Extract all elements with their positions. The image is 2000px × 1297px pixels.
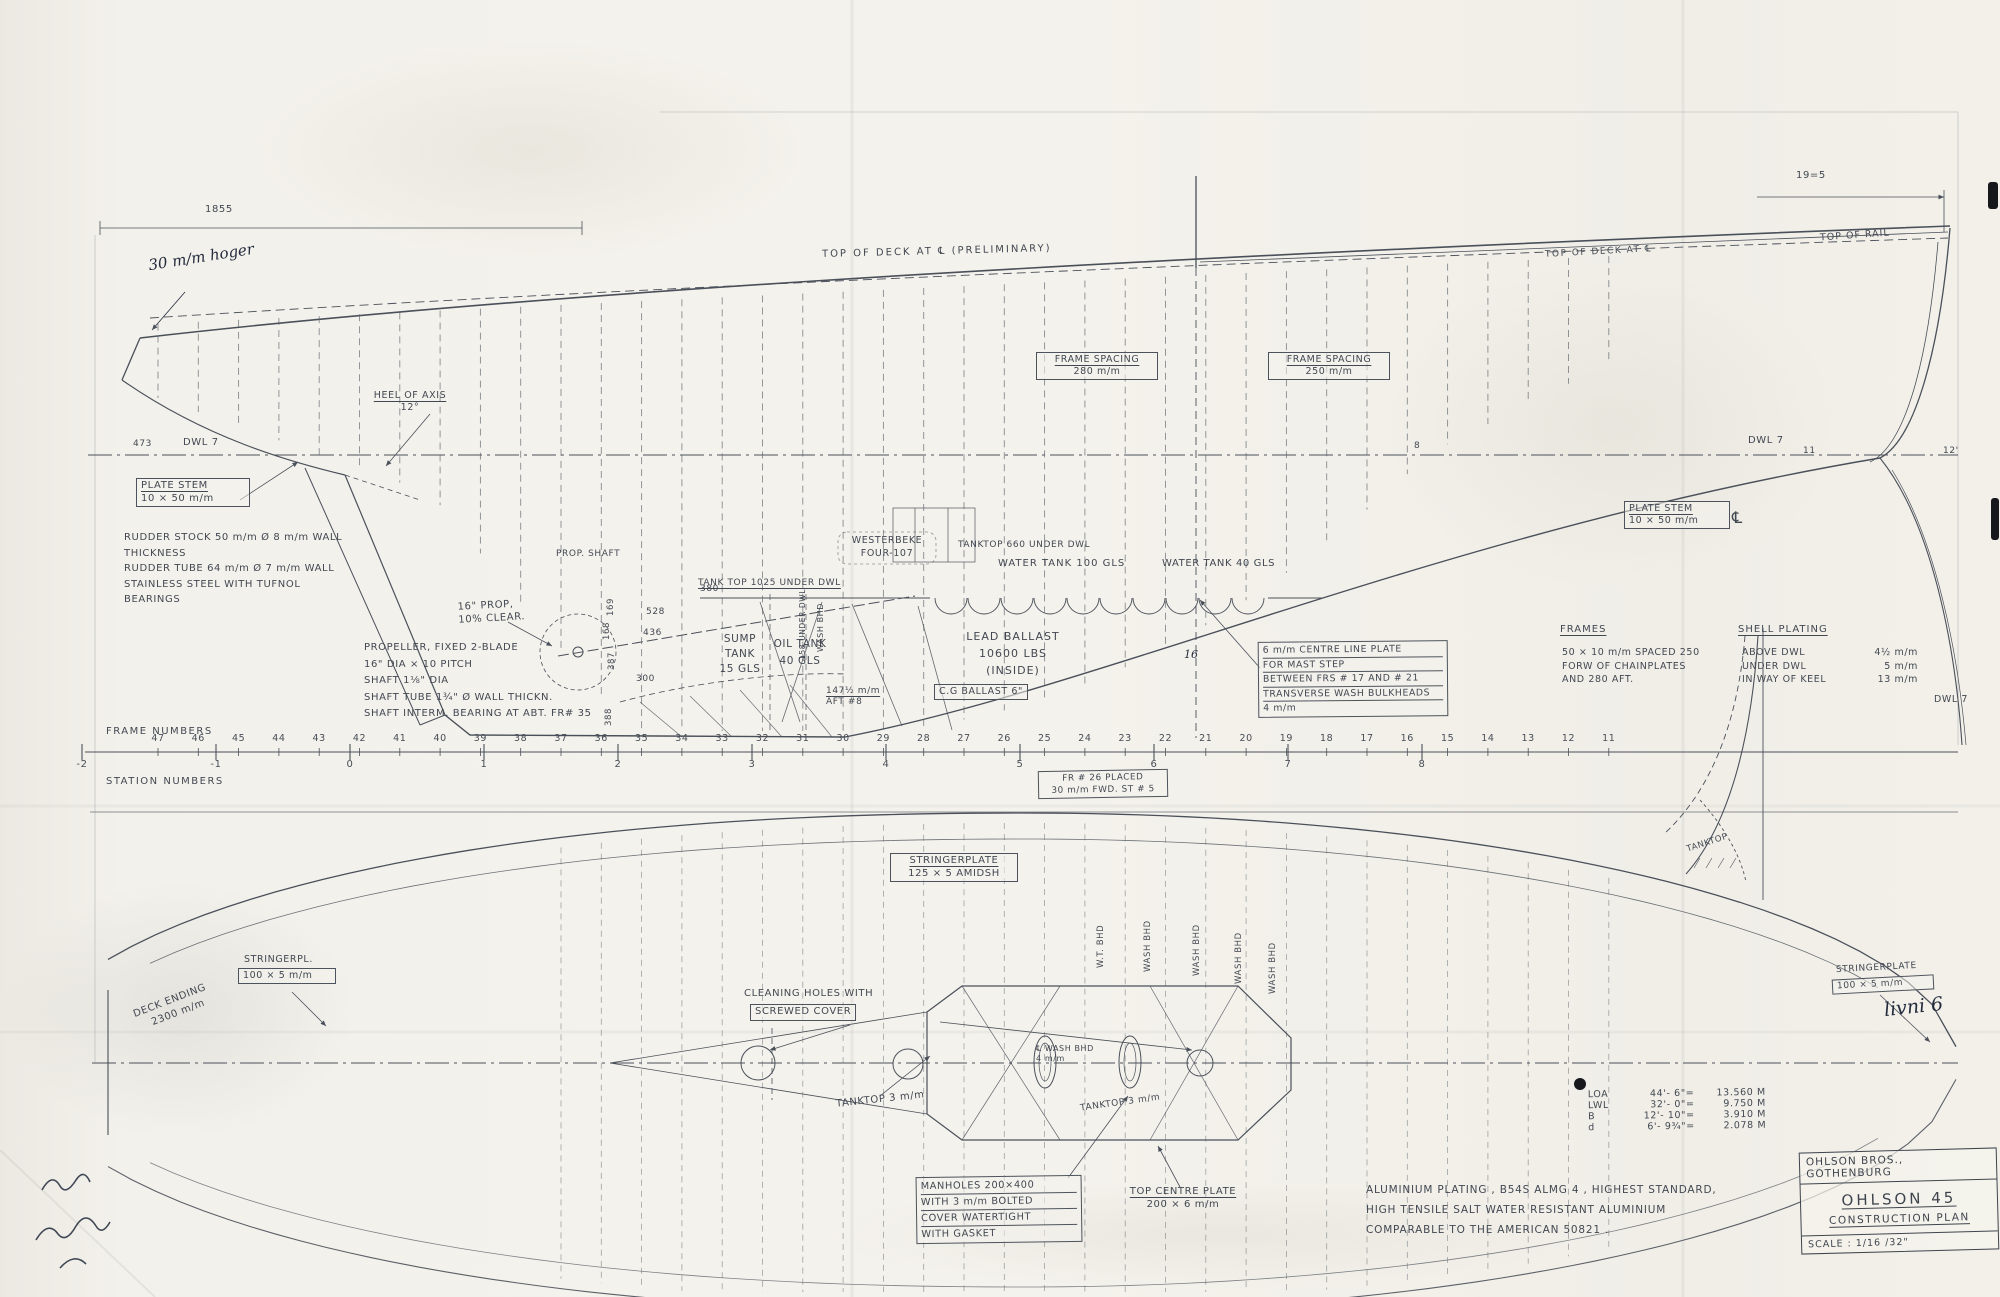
frame-number: 21 [1199, 733, 1212, 745]
waterline-mark-8: 8 [1414, 441, 1420, 452]
lead-ballast-label: LEAD BALLAST 10600 LBS (INSIDE) [958, 628, 1068, 679]
wash-bhd-vertical-label: WASH BHD [816, 588, 826, 652]
frame-number: 31 [796, 733, 809, 745]
offset-dim-387: 387 [607, 646, 618, 670]
offset-dim-169: 169 [606, 592, 617, 616]
aft-frame8-note: 147½ m/m AFT #8 [826, 686, 880, 708]
dwl-label-right-lower: DWL 7 [1934, 694, 1968, 706]
stringerplate-mid-box: STRINGERPLATE 125 × 5 AMIDSH [890, 853, 1018, 882]
station-number: 3 [749, 759, 756, 772]
dwl-label-right: DWL 7 [1748, 435, 1784, 448]
wash-bhd-label: WASH BHD [1143, 902, 1154, 972]
station-number: 8 [1419, 759, 1426, 772]
frame-number: 11 [1602, 733, 1615, 745]
station-number: 2 [615, 759, 622, 772]
frame-number: 19 [1280, 733, 1293, 745]
centerline-symbol: ℄ [1732, 508, 1743, 528]
frame-number: 33 [716, 733, 729, 745]
frame-number: 20 [1239, 733, 1252, 745]
plate-stem-left-box: PLATE STEM 10 × 50 m/m [136, 478, 250, 507]
cg-ballast-label: C.G BALLAST 6" [934, 684, 1028, 700]
engine-label: WESTERBEKE FOUR-107 [840, 534, 934, 560]
frame-number: 23 [1119, 733, 1132, 745]
prop-clearance-label: 16" PROP, 10% CLEAR. [457, 598, 525, 626]
stringerplate-left-label: STRINGERPL. [244, 954, 313, 966]
frame-number: 43 [313, 733, 326, 745]
blueprint-sheet: 1855 30 m/m hoger TOP OF DECK AT ℄ (PREL… [0, 0, 2000, 1297]
cleaning-holes-label: CLEANING HOLES WITH [744, 988, 873, 1001]
offset-dim-168: 168 [602, 616, 613, 640]
frame-number: 38 [514, 733, 527, 745]
frame-number: 41 [393, 733, 406, 745]
frame-number: 34 [675, 733, 688, 745]
offset-dim-300: 300 [636, 674, 655, 685]
wash-bhd-label: WASH BHD [1192, 906, 1203, 976]
frame-number: 16 [1401, 733, 1414, 745]
frame-number: 17 [1360, 733, 1373, 745]
offset-dim-436: 436 [643, 628, 662, 639]
prop-shaft-label: PROP. SHAFT [556, 549, 620, 560]
frame-number: 24 [1078, 733, 1091, 745]
propeller-note: PROPELLER, FIXED 2-BLADE 16" DIA × 10 PI… [364, 640, 592, 723]
water-tank-40-label: WATER TANK 40 GLS [1162, 558, 1275, 571]
dwl-label-left: DWL 7 [183, 437, 219, 450]
frame-26-note-box: FR # 26 PLACED 30 m/m FWD. ST # 5 [1038, 769, 1168, 799]
pencil-mark-16: 16 [1184, 648, 1198, 662]
floor-limber-arcs [935, 598, 1264, 614]
material-specification-note: ALUMINIUM PLATING , B54S ALMG 4 , HIGHES… [1366, 1180, 1717, 1240]
sump-tank-label: SUMP TANK 15 GLS [712, 632, 768, 677]
frame-number: 40 [433, 733, 446, 745]
frame-number: 35 [635, 733, 648, 745]
top-centre-plate-label: TOP CENTRE PLATE 200 × 6 m/m [1118, 1186, 1248, 1211]
wash-bhd-4-label: ℄ WASH BHD 4 m/m [1036, 1044, 1094, 1064]
shell-plating-row: IN WAY OF KEEL13 m/m [1742, 673, 1918, 687]
dim-19-5: 19=5 [1796, 170, 1826, 183]
frame-spacing-aft-box: FRAME SPACING 250 m/m [1268, 352, 1390, 380]
offset-dim-388: 388 [604, 702, 615, 726]
waterline-dim-473: 473 [133, 439, 152, 450]
shell-plating-row: UNDER DWL5 m/m [1742, 660, 1918, 674]
station-numbers-title: STATION NUMBERS [106, 776, 224, 789]
station-number: -2 [76, 759, 87, 772]
frame-number: 12 [1562, 733, 1575, 745]
company-name: OHLSON BROS., GOTHENBURG [1800, 1148, 1997, 1184]
dim-19-5-line [1757, 190, 1944, 232]
rudder-note: RUDDER STOCK 50 m/m Ø 8 m/m WALL THICKNE… [124, 530, 342, 608]
frame-number: 47 [151, 733, 164, 745]
frame-number: 22 [1159, 733, 1172, 745]
frame-number: 26 [998, 733, 1011, 745]
frame-number: 39 [474, 733, 487, 745]
shell-plating-header: SHELL PLATING [1738, 624, 1828, 637]
frame-number: 28 [917, 733, 930, 745]
frame-number: 27 [957, 733, 970, 745]
station-number: 5 [1017, 759, 1024, 772]
frame-number: 32 [756, 733, 769, 745]
waterline-mark-11: 11 [1803, 446, 1816, 457]
dim-1855: 1855 [205, 204, 233, 217]
frame-number: 13 [1522, 733, 1535, 745]
frame-number: 29 [877, 733, 890, 745]
plate-stem-right-box: PLATE STEM 10 × 50 m/m [1624, 501, 1730, 529]
station-number: 1 [481, 759, 488, 772]
frame-number: 14 [1481, 733, 1494, 745]
station-number: -1 [210, 759, 221, 772]
frame-number: 25 [1038, 733, 1051, 745]
waterline-mark-12: 12' [1943, 446, 1959, 457]
frames-note-header: FRAMES [1560, 624, 1606, 637]
stringerplate-left-size: 100 × 5 m/m [238, 968, 336, 984]
frame-number: 45 [232, 733, 245, 745]
title-block: OHLSON BROS., GOTHENBURG OHLSON 45 CONST… [1799, 1147, 2000, 1254]
handwritten-scribble [36, 1174, 110, 1268]
frame-number: 36 [595, 733, 608, 745]
wash-bhd-label: WASH BHD [1268, 924, 1279, 994]
station-numbers-row: -2-1012345678 [0, 759, 2000, 773]
station-number: 7 [1285, 759, 1292, 772]
offset-dim-528: 528 [646, 607, 665, 618]
wt-bhd-label: W.T. BHD [1096, 898, 1107, 968]
station-number: 4 [883, 759, 890, 772]
frame-number: 44 [272, 733, 285, 745]
tanktop-660-label: TANKTOP 660 UNDER DWL [958, 540, 1090, 551]
frame-number: 15 [1441, 733, 1454, 745]
principal-dimensions-table: LOA44'- 6"=13.560 M LWL32'- 0"=9.750 M B… [1588, 1087, 1767, 1133]
frame-number: 30 [836, 733, 849, 745]
water-tank-100-label: WATER TANK 100 GLS [998, 558, 1125, 571]
frame-number: 37 [554, 733, 567, 745]
frame-number: 42 [353, 733, 366, 745]
cleaning-holes-label2: SCREWED COVER [750, 1004, 856, 1021]
frames-note-body: 50 × 10 m/m SPACED 250 FORW OF CHAINPLAT… [1562, 646, 1700, 687]
frame-number: 18 [1320, 733, 1333, 745]
heel-of-axis-label: HEEL OF AXIS 12° [368, 390, 452, 414]
station-number: 0 [347, 759, 354, 772]
shell-plating-row: ABOVE DWL4½ m/m [1742, 646, 1918, 660]
frame-number: 46 [192, 733, 205, 745]
frame-numbers-row: 4746454443424140393837363534333231302928… [0, 733, 2000, 747]
shell-plating-table: ABOVE DWL4½ m/m UNDER DWL5 m/m IN WAY OF… [1742, 646, 1918, 687]
dim-1855-line [100, 221, 582, 235]
frame-spacing-fwd-box: FRAME SPACING 280 m/m [1036, 352, 1158, 380]
mast-step-plate-box: 6 m/m CENTRE LINE PLATE FOR MAST STEP BE… [1258, 640, 1449, 718]
manholes-note-box: MANHOLES 200×400 WITH 3 m/m BOLTED COVER… [916, 1175, 1083, 1244]
under-dwl-vertical-dim: 158 UNDER DWL [798, 590, 807, 660]
offset-dim-380: 380 [700, 584, 719, 595]
wash-bhd-label: WASH BHD [1234, 914, 1245, 984]
